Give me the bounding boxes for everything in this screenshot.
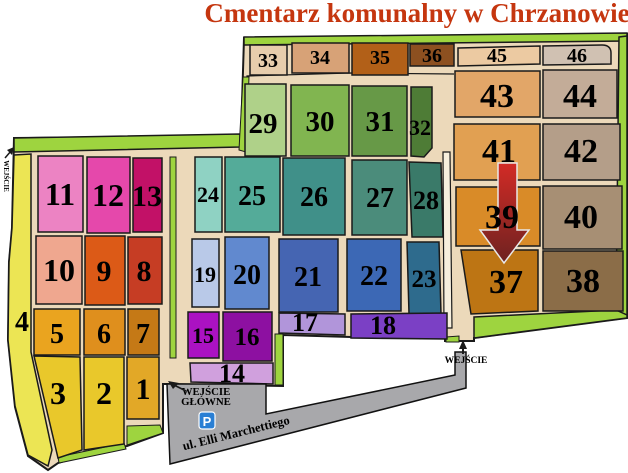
svg-text:11: 11 xyxy=(45,176,75,212)
svg-text:39: 39 xyxy=(485,199,519,236)
svg-text:Cmentarz komunalny w Chrzanowi: Cmentarz komunalny w Chrzanowie xyxy=(204,0,628,28)
svg-text:23: 23 xyxy=(412,266,437,293)
svg-text:41: 41 xyxy=(482,133,516,170)
svg-text:44: 44 xyxy=(563,78,597,115)
svg-text:6: 6 xyxy=(97,319,111,350)
svg-text:37: 37 xyxy=(489,264,523,301)
svg-text:7: 7 xyxy=(136,319,150,350)
svg-text:8: 8 xyxy=(137,255,152,288)
svg-text:42: 42 xyxy=(564,133,598,170)
svg-text:1: 1 xyxy=(136,373,151,406)
svg-text:GŁÓWNE: GŁÓWNE xyxy=(181,396,231,408)
svg-text:P: P xyxy=(203,414,212,429)
svg-text:12: 12 xyxy=(92,177,124,213)
svg-text:15: 15 xyxy=(192,323,214,348)
svg-text:38: 38 xyxy=(566,263,600,300)
svg-text:25: 25 xyxy=(238,181,266,212)
svg-text:4: 4 xyxy=(15,307,29,338)
svg-text:45: 45 xyxy=(487,45,507,67)
svg-text:29: 29 xyxy=(249,108,278,140)
svg-text:31: 31 xyxy=(366,106,395,138)
svg-text:43: 43 xyxy=(480,78,514,115)
svg-text:WEJŚCIE: WEJŚCIE xyxy=(445,354,488,366)
svg-text:32: 32 xyxy=(409,115,431,140)
svg-text:21: 21 xyxy=(294,262,322,293)
svg-text:26: 26 xyxy=(300,182,328,213)
svg-text:40: 40 xyxy=(564,199,598,236)
svg-text:9: 9 xyxy=(97,255,112,288)
svg-text:27: 27 xyxy=(366,183,394,214)
svg-text:WEJŚCIE: WEJŚCIE xyxy=(2,160,10,192)
svg-text:28: 28 xyxy=(413,186,439,215)
svg-text:46: 46 xyxy=(567,45,587,67)
svg-text:24: 24 xyxy=(197,182,219,207)
svg-text:35: 35 xyxy=(370,47,390,69)
svg-text:2: 2 xyxy=(96,375,112,411)
svg-text:17: 17 xyxy=(292,308,318,337)
svg-text:36: 36 xyxy=(422,45,442,67)
svg-text:18: 18 xyxy=(370,311,396,340)
svg-text:10: 10 xyxy=(43,252,75,288)
svg-text:22: 22 xyxy=(360,261,388,292)
svg-text:34: 34 xyxy=(310,47,330,69)
svg-text:3: 3 xyxy=(50,375,66,411)
svg-text:5: 5 xyxy=(50,319,64,350)
svg-text:19: 19 xyxy=(194,262,216,287)
svg-text:20: 20 xyxy=(233,260,261,291)
svg-text:30: 30 xyxy=(306,106,335,138)
svg-text:13: 13 xyxy=(132,180,162,213)
svg-text:33: 33 xyxy=(258,50,278,72)
svg-text:16: 16 xyxy=(235,324,260,351)
